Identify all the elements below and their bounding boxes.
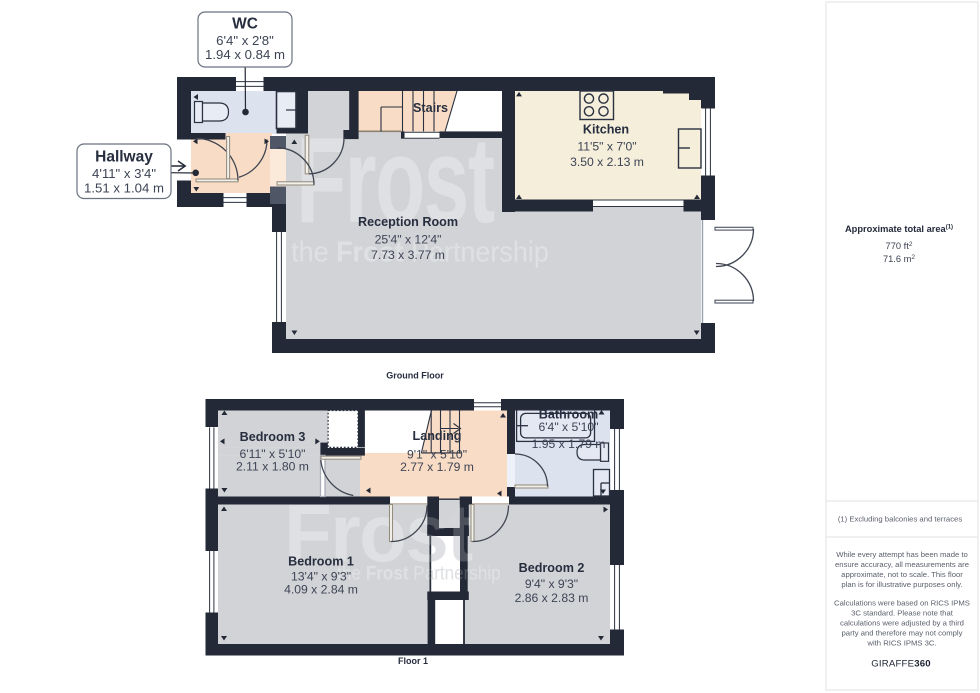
svg-text:While every attempt has been m: While every attempt has been made to xyxy=(836,550,968,559)
svg-text:71.6 m2: 71.6 m2 xyxy=(883,254,915,264)
svg-text:Bedroom 2: Bedroom 2 xyxy=(519,561,585,575)
svg-text:13'4" x 9'3": 13'4" x 9'3" xyxy=(291,570,351,584)
svg-text:11'5" x 7'0": 11'5" x 7'0" xyxy=(577,140,636,154)
svg-text:plan is for illustrative purpo: plan is for illustrative purposes only. xyxy=(841,580,962,589)
svg-text:3C standard. Please note that: 3C standard. Please note that xyxy=(851,609,954,618)
svg-text:approximate, not to scale. Thi: approximate, not to scale. This floor xyxy=(841,570,963,579)
svg-text:6'4" x 2'8": 6'4" x 2'8" xyxy=(216,33,274,48)
svg-text:Bedroom 1: Bedroom 1 xyxy=(288,555,354,569)
svg-text:1.95 x 1.79 m: 1.95 x 1.79 m xyxy=(532,437,606,451)
svg-text:Calculations were based on RIC: Calculations were based on RICS IPMS xyxy=(834,599,970,608)
svg-text:Reception Room: Reception Room xyxy=(358,215,458,229)
svg-text:7.73 x 3.77 m: 7.73 x 3.77 m xyxy=(371,248,445,262)
svg-text:(1) Excluding balconies and te: (1) Excluding balconies and terraces xyxy=(838,515,963,524)
svg-text:6'4" x 5'10": 6'4" x 5'10" xyxy=(538,420,598,434)
svg-text:4'11" x 3'4": 4'11" x 3'4" xyxy=(92,166,156,181)
svg-text:2.11 x 1.80 m: 2.11 x 1.80 m xyxy=(236,460,309,474)
svg-text:25'4" x 12'4": 25'4" x 12'4" xyxy=(375,233,442,247)
svg-text:Kitchen: Kitchen xyxy=(583,123,629,137)
svg-text:calculations were adjusted by: calculations were adjusted by a third xyxy=(840,619,964,628)
svg-text:2.86 x 2.83 m: 2.86 x 2.83 m xyxy=(515,591,589,605)
svg-text:WC: WC xyxy=(232,16,258,33)
svg-text:Hallway: Hallway xyxy=(95,149,153,166)
svg-text:1.94 x 0.84 m: 1.94 x 0.84 m xyxy=(205,47,285,62)
svg-text:4.09 x 2.84 m: 4.09 x 2.84 m xyxy=(284,583,358,597)
svg-text:GIRAFFE360: GIRAFFE360 xyxy=(871,659,931,670)
svg-text:9'4" x 9'3": 9'4" x 9'3" xyxy=(525,577,578,591)
svg-text:Bedroom 3: Bedroom 3 xyxy=(240,430,306,444)
svg-text:3.50 x 2.13 m: 3.50 x 2.13 m xyxy=(570,155,644,169)
svg-text:Floor 1: Floor 1 xyxy=(398,656,428,666)
svg-text:Stairs: Stairs xyxy=(413,101,448,115)
svg-text:Ground Floor: Ground Floor xyxy=(386,371,444,381)
svg-text:with RICS IPMS 3C.: with RICS IPMS 3C. xyxy=(866,639,936,648)
svg-text:2.77 x 1.79 m: 2.77 x 1.79 m xyxy=(400,460,474,474)
svg-text:Landing: Landing xyxy=(413,429,462,443)
svg-text:party and therefore may not co: party and therefore may not comply xyxy=(842,629,963,638)
svg-text:770 ft2: 770 ft2 xyxy=(886,241,913,251)
svg-text:Approximate total area(1): Approximate total area(1) xyxy=(845,224,953,234)
svg-text:ensure accuracy, all measureme: ensure accuracy, all measurements are xyxy=(835,560,969,569)
svg-text:1.51 x 1.04 m: 1.51 x 1.04 m xyxy=(84,181,164,196)
